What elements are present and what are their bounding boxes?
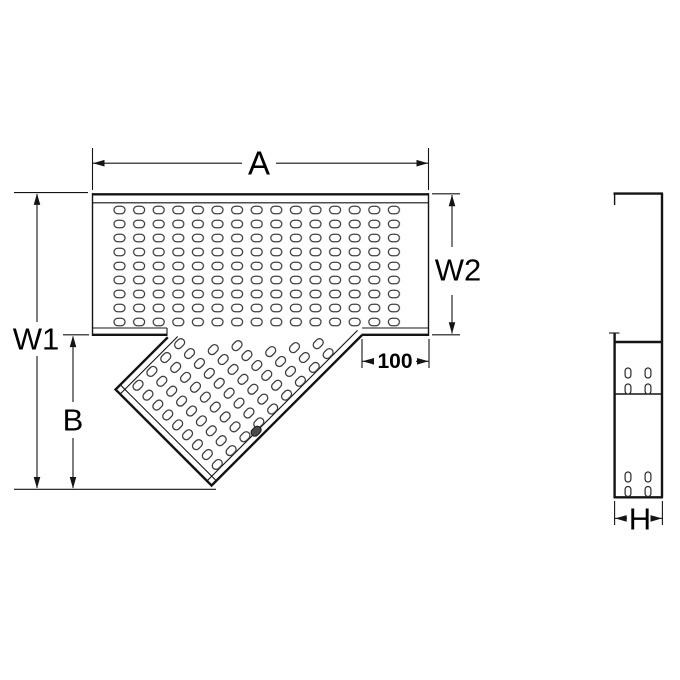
main-tray xyxy=(92,193,429,336)
side-connector-holes xyxy=(625,368,651,497)
side-view: H xyxy=(609,193,663,536)
branch-wallA-flange xyxy=(120,337,178,395)
plan-view: A W1 B W2 xyxy=(13,145,482,490)
cable-tray-tee-drawing: A W1 B W2 xyxy=(0,0,680,680)
dim-label-b: B xyxy=(63,403,84,438)
branch-wallB-flange xyxy=(207,330,358,481)
dim-100: 100 xyxy=(362,339,429,373)
dim-label-w2: W2 xyxy=(435,253,482,288)
dim-label-100: 100 xyxy=(377,350,412,373)
dim-a: A xyxy=(93,145,429,191)
dim-b: B xyxy=(63,335,89,489)
dim-w2: W2 xyxy=(432,194,481,335)
drawing-canvas: A W1 B W2 xyxy=(0,0,680,680)
dim-label-h: H xyxy=(629,501,651,536)
dim-label-w1: W1 xyxy=(13,322,60,357)
main-perforations xyxy=(110,203,404,329)
dim-label-a: A xyxy=(248,145,270,182)
dim-h: H xyxy=(615,501,663,536)
